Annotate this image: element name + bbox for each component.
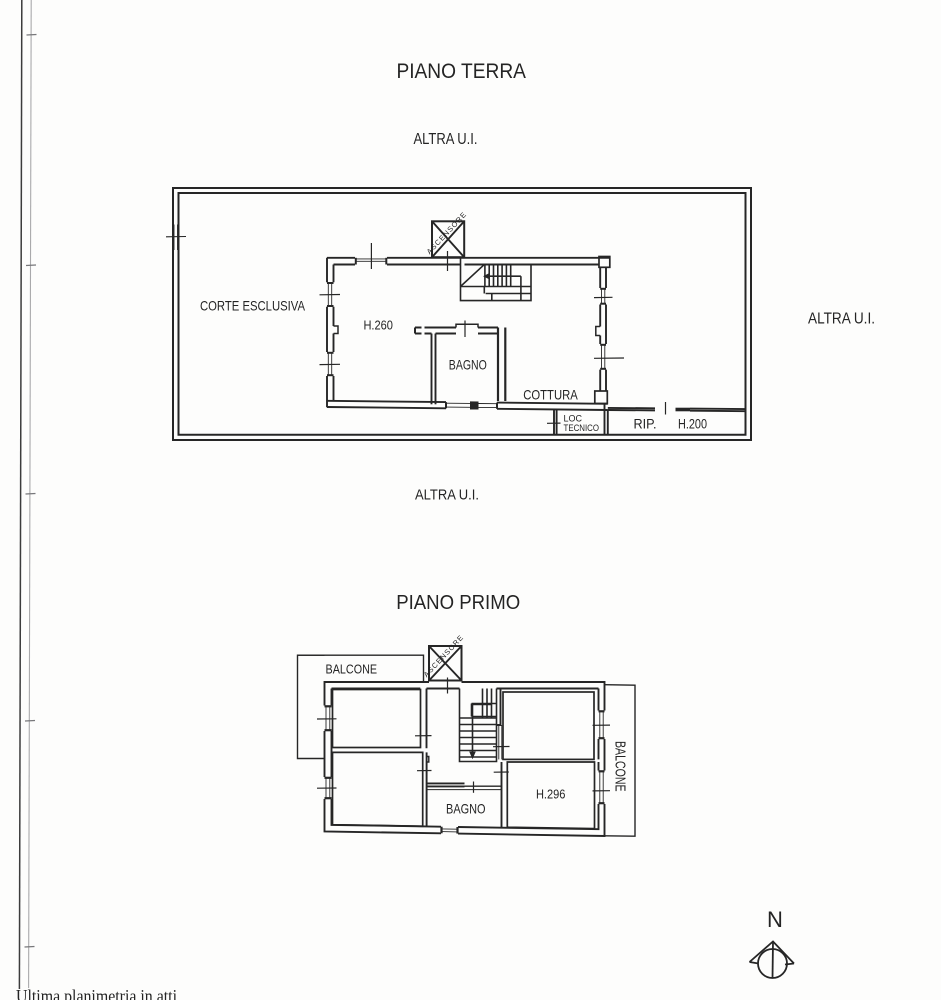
svg-text:H.296: H.296 (536, 786, 566, 801)
svg-text:TECNICO: TECNICO (564, 423, 600, 433)
svg-text:RIP.: RIP. (634, 416, 657, 431)
svg-text:BAGNO: BAGNO (449, 357, 487, 372)
svg-text:H.200: H.200 (678, 416, 707, 431)
svg-text:BAGNO: BAGNO (446, 801, 486, 816)
svg-text:ALTRA U.I.: ALTRA U.I. (415, 486, 479, 503)
svg-text:COTTURA: COTTURA (523, 387, 578, 402)
svg-text:ALTRA U.I.: ALTRA U.I. (808, 310, 875, 327)
svg-text:PIANO PRIMO: PIANO PRIMO (396, 592, 520, 614)
svg-text:BALCONE: BALCONE (326, 661, 378, 676)
svg-text:ALTRA U.I.: ALTRA U.I. (414, 131, 478, 148)
svg-text:PIANO TERRA: PIANO TERRA (396, 59, 526, 83)
svg-text:BALCONE: BALCONE (612, 741, 628, 792)
svg-text:Ultima planimetria in atti: Ultima planimetria in atti (16, 986, 177, 1000)
svg-text:CORTE ESCLUSIVA: CORTE ESCLUSIVA (200, 298, 306, 313)
svg-text:N: N (767, 907, 783, 932)
svg-text:H.260: H.260 (363, 318, 393, 333)
